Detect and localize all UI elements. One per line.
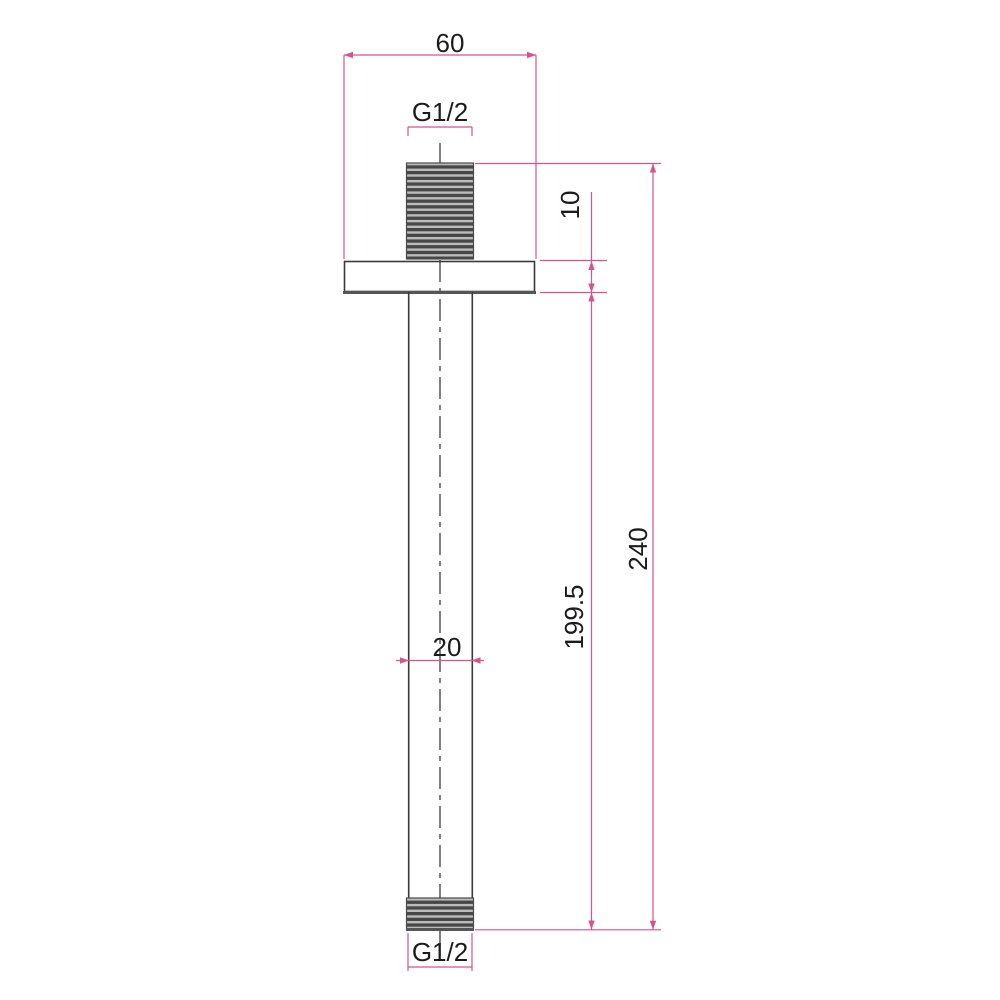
- dimension-label-tube-diameter: 20: [433, 632, 462, 662]
- arrow-right-icon: [527, 52, 536, 58]
- bottom-thread-section: [407, 898, 474, 929]
- arrow-down-icon: [650, 921, 656, 930]
- arrow-right-icon: [400, 657, 409, 663]
- top-thread-dimension: G1/2: [408, 97, 472, 136]
- dimension-label-bottom-thread: G1/2: [412, 937, 468, 967]
- dimension-label-top-thread: G1/2: [412, 97, 468, 127]
- arrow-down-icon: [588, 284, 594, 293]
- dimension-label-overall-length: 240: [623, 527, 653, 570]
- technical-drawing-canvas: 60 G1/2 10 20: [0, 0, 1000, 1000]
- flange-thickness-dimension: 10: [540, 191, 607, 293]
- shower-arm-outline: [343, 143, 536, 957]
- bottom-thread-dimension: G1/2: [408, 933, 472, 971]
- arrow-up-icon: [650, 164, 656, 173]
- arrow-left-icon: [344, 52, 353, 58]
- dimension-label-top-width: 60: [436, 28, 465, 58]
- arm-length-dimension: 199.5: [559, 293, 595, 930]
- arrow-up-icon: [588, 293, 594, 302]
- arrow-up-icon: [588, 261, 594, 270]
- shower-arm-dimension-drawing: 60 G1/2 10 20: [0, 0, 1000, 1000]
- overall-length-dimension: 240: [475, 164, 661, 930]
- top-thread-section: [407, 163, 474, 259]
- arrow-down-icon: [588, 921, 594, 930]
- dimension-label-arm-length: 199.5: [559, 584, 589, 649]
- dimension-label-flange-thickness: 10: [555, 191, 585, 220]
